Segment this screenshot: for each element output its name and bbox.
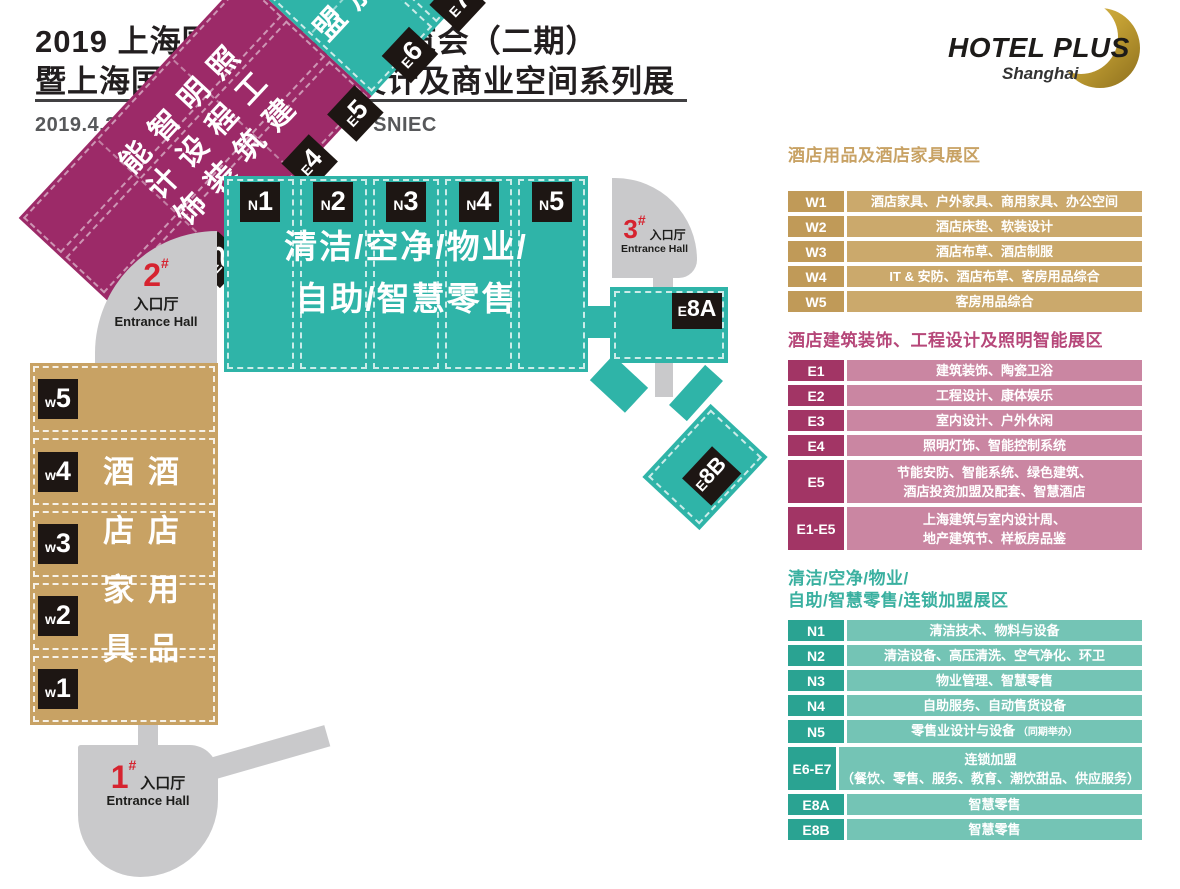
hall-label-number: 1: [258, 188, 273, 215]
legend-row-content: 零售业设计与设备 （同期举办）: [847, 720, 1142, 743]
legend-row-N5: N5零售业设计与设备 （同期举办）: [788, 720, 1142, 743]
legend-line: 智慧零售: [968, 795, 1020, 814]
legend-row-label: W1: [788, 191, 844, 212]
legend-line: 建筑装饰、陶瓷卫浴: [936, 361, 1053, 380]
hall-label-number: 8A: [687, 297, 716, 320]
legend-row-N1: N1清洁技术、物料与设备: [788, 620, 1142, 641]
entrance-hall-3: 3# 入口厅 Entrance Hall: [612, 178, 697, 278]
legend-line: 工程设计、康体娱乐: [936, 386, 1053, 405]
hall-label-number: 3: [404, 188, 419, 215]
entrance-1-label-cn: 入口厅: [140, 772, 185, 793]
legend-line: 照明灯饰、智能控制系统: [923, 436, 1066, 455]
hall-label-letter: w: [45, 467, 56, 483]
legend-row-label: N2: [788, 645, 844, 666]
hall-label-W2: w2: [38, 596, 78, 636]
logo-subtitle: Shanghai: [1002, 64, 1079, 84]
corridor-e8a-south: [655, 363, 673, 397]
legend-row-label: E8B: [788, 819, 844, 840]
legend-line: 地产建筑节、样板房品鉴: [923, 529, 1066, 548]
legend-row-E8A: E8A智慧零售: [788, 794, 1142, 815]
entrance-2-label-cn: 入口厅: [95, 293, 217, 314]
hall-label-letter: N: [321, 197, 331, 213]
legend-row-content: 酒店布草、酒店制服: [847, 241, 1142, 262]
legend-row-content: 节能安防、智能系统、绿色建筑、酒店投资加盟及配套、智慧酒店: [847, 460, 1142, 503]
entrance-2-number: 2: [143, 259, 161, 291]
hall-label-W4: w4: [38, 452, 78, 492]
hall-e8a: E8A: [610, 287, 728, 363]
legend-section-title: 自助/智慧零售/连锁加盟展区: [788, 590, 1142, 612]
legend-line: 酒店床垫、软装设计: [936, 217, 1053, 236]
hall-label-letter: E: [678, 303, 687, 319]
expo-floorplan-poster: 2019 上海国际酒店用品博览会（二期） 暨上海国际酒店工程、设计及商业空间系列…: [0, 0, 1180, 889]
legend-line: 智慧零售: [968, 820, 1020, 839]
entrance-hall-1: 1# 入口厅 Entrance Hall: [78, 745, 218, 877]
legend-line: 连锁加盟: [964, 750, 1016, 769]
legend-row-label: W3: [788, 241, 844, 262]
hall-label-letter: w: [45, 684, 56, 700]
hall-label-W1: w1: [38, 669, 78, 709]
link-nhall-e8a: [588, 306, 610, 338]
legend-row-content: 室内设计、户外休闲: [847, 410, 1142, 431]
legend-row-E3: E3室内设计、户外休闲: [788, 410, 1142, 431]
legend-row-content: 智慧零售: [847, 794, 1142, 815]
legend-row-content: 物业管理、智慧零售: [847, 670, 1142, 691]
legend-rows: E1建筑装饰、陶瓷卫浴E2工程设计、康体娱乐E3室内设计、户外休闲E4照明灯饰、…: [788, 360, 1142, 550]
legend-row-W5: W5客房用品综合: [788, 291, 1142, 312]
legend-line: 清洁技术、物料与设备: [929, 621, 1059, 640]
legend-row-content: 照明灯饰、智能控制系统: [847, 435, 1142, 456]
legend-row-label: W5: [788, 291, 844, 312]
legend-line: 客房用品综合: [955, 292, 1033, 311]
legend-row-label: N4: [788, 695, 844, 716]
legend-row-label: E3: [788, 410, 844, 431]
hall-label-N1: N1: [240, 182, 280, 222]
legend-row-E1-E5: E1-E5上海建筑与室内设计周、地产建筑节、样板房品鉴: [788, 507, 1142, 550]
entrance-3-label-en: Entrance Hall: [612, 243, 697, 255]
hall-label-number: 2: [56, 602, 71, 629]
legend-row-label: W4: [788, 266, 844, 287]
legend-section-title: 清洁/空净/物业/: [788, 568, 1142, 590]
legend-row-N4: N4自助服务、自动售货设备: [788, 695, 1142, 716]
legend-section-teal: 清洁/空净/物业/自助/智慧零售/连锁加盟展区N1清洁技术、物料与设备N2清洁设…: [788, 568, 1142, 840]
entrance-2-label-en: Entrance Hall: [95, 314, 217, 329]
hall-label-number: 2: [331, 188, 346, 215]
legend-row-label: E8A: [788, 794, 844, 815]
entrance-3-hash: #: [638, 212, 646, 228]
hall-label-number: 3: [56, 530, 71, 557]
hall-west-w1-w5: 酒店用品酒店家具 w5w4w3w2w1: [30, 363, 218, 725]
legend-row-label: N5: [788, 720, 844, 743]
hall-label-letter: N: [539, 197, 549, 213]
legend-row-E2: E2工程设计、康体娱乐: [788, 385, 1142, 406]
legend-section-title: 酒店建筑装饰、工程设计及照明智能展区: [788, 330, 1142, 352]
hall-label-E8A: E8A: [672, 293, 722, 329]
hall-label-letter: N: [248, 197, 258, 213]
legend-line: 酒店投资加盟及配套、智慧酒店: [903, 482, 1085, 501]
hall-label-number: 5: [56, 385, 71, 412]
legend-row-E8B: E8B智慧零售: [788, 819, 1142, 840]
legend-line: 上海建筑与室内设计周、: [923, 510, 1066, 529]
hall-label-letter: w: [45, 611, 56, 627]
legend-row-W4: W4IT & 安防、酒店布草、客房用品综合: [788, 266, 1142, 287]
hall-label-number: 1: [56, 675, 71, 702]
hall-e8b: E8B: [642, 404, 767, 530]
hall-label-N5: N5: [532, 182, 572, 222]
legend-row-content: 清洁技术、物料与设备: [847, 620, 1142, 641]
legend-line: 自助服务、自动售货设备: [923, 696, 1066, 715]
legend-row-E5: E5节能安防、智能系统、绿色建筑、酒店投资加盟及配套、智慧酒店: [788, 460, 1142, 503]
legend-line: 零售业设计与设备 （同期举办）: [911, 721, 1078, 742]
legend-rows: W1酒店家具、户外家具、商用家具、办公空间W2酒店床垫、软装设计W3酒店布草、酒…: [788, 191, 1142, 312]
hall-label-letter: w: [45, 539, 56, 555]
legend-row-content: 建筑装饰、陶瓷卫浴: [847, 360, 1142, 381]
hall-label-N3: N3: [386, 182, 426, 222]
hotel-plus-logo: HOTEL PLUS Shanghai: [930, 0, 1180, 110]
legend-line: 室内设计、户外休闲: [936, 411, 1053, 430]
legend-row-content: 连锁加盟（餐饮、零售、服务、教育、潮饮甜品、供应服务）: [839, 747, 1142, 790]
legend-section-magenta: 酒店建筑装饰、工程设计及照明智能展区E1建筑装饰、陶瓷卫浴E2工程设计、康体娱乐…: [788, 330, 1142, 550]
legend-line: 酒店布草、酒店制服: [936, 242, 1053, 261]
hall-label-letter: w: [45, 394, 56, 410]
entrance-3-number: 3: [623, 216, 637, 242]
hall-label-W3: w3: [38, 524, 78, 564]
legend-row-label: E6-E7: [788, 747, 836, 790]
legend-section-tan: 酒店用品及酒店家具展区W1酒店家具、户外家具、商用家具、办公空间W2酒店床垫、软…: [788, 145, 1142, 312]
legend: 酒店用品及酒店家具展区W1酒店家具、户外家具、商用家具、办公空间W2酒店床垫、软…: [788, 145, 1142, 858]
hall-label-letter: N: [393, 197, 403, 213]
legend-row-E4: E4照明灯饰、智能控制系统: [788, 435, 1142, 456]
hall-north-n1-n5: 清洁/空净/物业/ 自助/智慧零售 N1N2N3N4N5: [224, 176, 588, 372]
hall-label-number: 5: [549, 188, 564, 215]
hall-label-number: 4: [56, 458, 71, 485]
hall-label-W5: w5: [38, 379, 78, 419]
link-e8a-band: [590, 355, 648, 413]
legend-line: 节能安防、智能系统、绿色建筑、: [897, 463, 1092, 482]
legend-row-content: 酒店床垫、软装设计: [847, 216, 1142, 237]
legend-row-W3: W3酒店布草、酒店制服: [788, 241, 1142, 262]
entrance-1-number: 1: [111, 761, 129, 793]
legend-row-label: E4: [788, 435, 844, 456]
logo-name: HOTEL PLUS: [948, 32, 1130, 64]
legend-row-content: 酒店家具、户外家具、商用家具、办公空间: [847, 191, 1142, 212]
legend-line: 清洁设备、高压清洗、空气净化、环卫: [884, 646, 1105, 665]
legend-row-content: 客房用品综合: [847, 291, 1142, 312]
legend-row-W1: W1酒店家具、户外家具、商用家具、办公空间: [788, 191, 1142, 212]
legend-rows: N1清洁技术、物料与设备N2清洁设备、高压清洗、空气净化、环卫N3物业管理、智慧…: [788, 620, 1142, 840]
legend-row-W2: W2酒店床垫、软装设计: [788, 216, 1142, 237]
entrance-2-hash: #: [161, 255, 169, 271]
legend-row-E6-E7: E6-E7连锁加盟（餐饮、零售、服务、教育、潮饮甜品、供应服务）: [788, 747, 1142, 790]
hall-label-N4: N4: [459, 182, 499, 222]
legend-line: （餐饮、零售、服务、教育、潮饮甜品、供应服务）: [841, 769, 1140, 788]
legend-row-content: 智慧零售: [847, 819, 1142, 840]
legend-row-label: E1: [788, 360, 844, 381]
legend-note: （同期举办）: [1015, 727, 1078, 738]
legend-row-label: E1-E5: [788, 507, 844, 550]
entrance-1-label-en: Entrance Hall: [78, 793, 218, 808]
hall-label-N2: N2: [313, 182, 353, 222]
legend-row-content: 上海建筑与室内设计周、地产建筑节、样板房品鉴: [847, 507, 1142, 550]
legend-row-label: N1: [788, 620, 844, 641]
entrance-3-label-cn: 入口厅: [650, 226, 686, 243]
legend-row-content: 清洁设备、高压清洗、空气净化、环卫: [847, 645, 1142, 666]
legend-line: 酒店家具、户外家具、商用家具、办公空间: [871, 192, 1118, 211]
legend-row-content: 自助服务、自动售货设备: [847, 695, 1142, 716]
legend-line: 物业管理、智慧零售: [936, 671, 1053, 690]
legend-row-content: 工程设计、康体娱乐: [847, 385, 1142, 406]
legend-row-label: E2: [788, 385, 844, 406]
legend-row-label: N3: [788, 670, 844, 691]
legend-section-title: 酒店用品及酒店家具展区: [788, 145, 1142, 167]
legend-line: IT & 安防、酒店布草、客房用品综合: [889, 267, 1099, 286]
legend-row-content: IT & 安防、酒店布草、客房用品综合: [847, 266, 1142, 287]
hall-label-number: 4: [476, 188, 491, 215]
legend-row-label: E5: [788, 460, 844, 503]
legend-row-N3: N3物业管理、智慧零售: [788, 670, 1142, 691]
hall-label-letter: N: [466, 197, 476, 213]
entrance-1-hash: #: [128, 757, 136, 773]
legend-row-E1: E1建筑装饰、陶瓷卫浴: [788, 360, 1142, 381]
legend-row-label: W2: [788, 216, 844, 237]
legend-row-N2: N2清洁设备、高压清洗、空气净化、环卫: [788, 645, 1142, 666]
